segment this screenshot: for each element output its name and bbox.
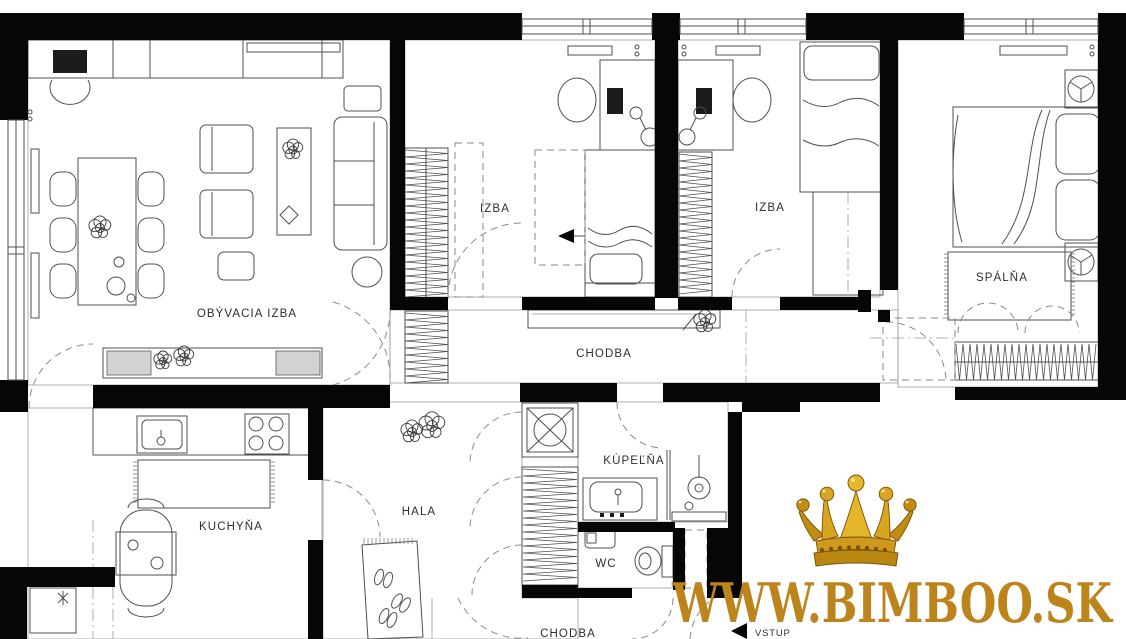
window xyxy=(964,19,1098,34)
room1-group xyxy=(405,46,659,383)
pillow xyxy=(1056,180,1100,240)
pillow xyxy=(590,254,642,284)
desk-lamp-icon xyxy=(630,107,642,119)
tv-shelf xyxy=(247,43,340,52)
tap-icon xyxy=(615,489,621,495)
radiator xyxy=(31,253,39,318)
bed xyxy=(800,42,883,192)
bedroom-group xyxy=(870,46,1105,382)
chair xyxy=(50,218,76,252)
label-room2: IZBA xyxy=(755,202,785,214)
shelf xyxy=(568,46,612,55)
shower xyxy=(667,450,726,521)
chair xyxy=(138,172,164,206)
shoe-icon xyxy=(385,611,399,629)
room2-group xyxy=(678,42,883,297)
direction-arrow-icon xyxy=(558,229,574,243)
dining-set xyxy=(50,158,164,305)
counter-plant-icon xyxy=(154,351,172,369)
coffee-table-plant-icon xyxy=(283,139,303,159)
sink xyxy=(137,416,187,453)
windows xyxy=(8,19,1098,380)
pillow xyxy=(1056,114,1100,174)
monitor-icon xyxy=(696,88,712,114)
armchair xyxy=(200,125,253,173)
floor-mat xyxy=(30,588,76,633)
tap-icon xyxy=(157,437,165,445)
label-corridor: CHODBA xyxy=(576,348,632,360)
armchair xyxy=(200,190,253,238)
hall-rug xyxy=(362,538,423,639)
floor-plan-page: OBÝVACIA IZBA IZBA IZBA SPÁLŇA CHODBA KU… xyxy=(0,0,1126,639)
wall-counter xyxy=(28,40,343,104)
shoe-icon xyxy=(377,607,391,625)
washing-machine xyxy=(522,403,578,457)
shelf xyxy=(1000,46,1067,55)
stool xyxy=(128,499,164,508)
room-outlines xyxy=(28,40,1098,639)
label-hall: HALA xyxy=(402,506,436,518)
corridor-plant-icon xyxy=(694,310,716,332)
counter-plant-icon xyxy=(174,346,194,366)
label-room1: IZBA xyxy=(480,203,510,215)
chair xyxy=(50,264,76,298)
desk-chair xyxy=(50,80,90,104)
double-bed xyxy=(953,107,1105,247)
pillow xyxy=(804,46,879,80)
window xyxy=(522,19,652,34)
watermark-url: WWW.BIMBOO.SK xyxy=(671,571,1113,635)
bedroom-rug xyxy=(944,252,1075,320)
label-kitchen: KUCHYŇA xyxy=(199,520,263,533)
doormat xyxy=(107,351,151,375)
monitor-icon xyxy=(607,88,623,114)
label-wc: WC xyxy=(595,558,616,570)
desk-chair xyxy=(558,78,596,122)
kitchen-pass-counter xyxy=(103,346,322,378)
chair xyxy=(138,218,164,252)
stool xyxy=(128,608,164,617)
console-shelf xyxy=(528,310,720,328)
nightstand xyxy=(1065,243,1098,281)
hall-plant-icon xyxy=(401,420,423,442)
doormat xyxy=(276,351,320,375)
shower-head-icon xyxy=(688,477,710,499)
desk xyxy=(558,60,659,150)
desk xyxy=(678,60,771,150)
hob xyxy=(245,414,289,454)
laptop-icon xyxy=(53,50,87,73)
corridor-group xyxy=(528,310,720,332)
living-room xyxy=(28,40,387,378)
label-bathroom: KÚPEĽŇA xyxy=(603,454,664,467)
hall-group xyxy=(362,403,578,639)
crown-icon xyxy=(797,475,916,566)
bathroom-sink xyxy=(583,478,657,520)
ottoman xyxy=(218,252,254,280)
table-plant-icon xyxy=(89,216,111,238)
floor-plan: OBÝVACIA IZBA IZBA IZBA SPÁLŇA CHODBA KU… xyxy=(0,0,1126,639)
label-living-room: OBÝVACIA IZBA xyxy=(197,307,297,320)
bed xyxy=(585,150,655,297)
kitchen-rug xyxy=(133,460,275,508)
tv-device xyxy=(344,86,381,111)
window xyxy=(680,19,806,34)
hall-plant-icon xyxy=(419,412,445,438)
kitchen-counter xyxy=(93,408,322,455)
kitchen-group xyxy=(30,408,322,633)
shelf xyxy=(716,46,760,55)
radiator xyxy=(31,149,39,213)
label-bedroom: SPÁLŇA xyxy=(976,271,1028,284)
island-table xyxy=(116,499,176,617)
chair xyxy=(138,264,164,298)
pouf xyxy=(352,257,382,287)
hinge-dots xyxy=(28,45,1094,121)
wc-group xyxy=(585,528,673,639)
chair xyxy=(50,172,76,206)
label-corridor2: CHODBA xyxy=(540,628,596,639)
nightstand xyxy=(1065,70,1098,108)
window xyxy=(8,120,24,380)
desk-chair xyxy=(733,78,771,122)
coffee-table xyxy=(277,128,311,235)
sofa xyxy=(334,117,387,250)
